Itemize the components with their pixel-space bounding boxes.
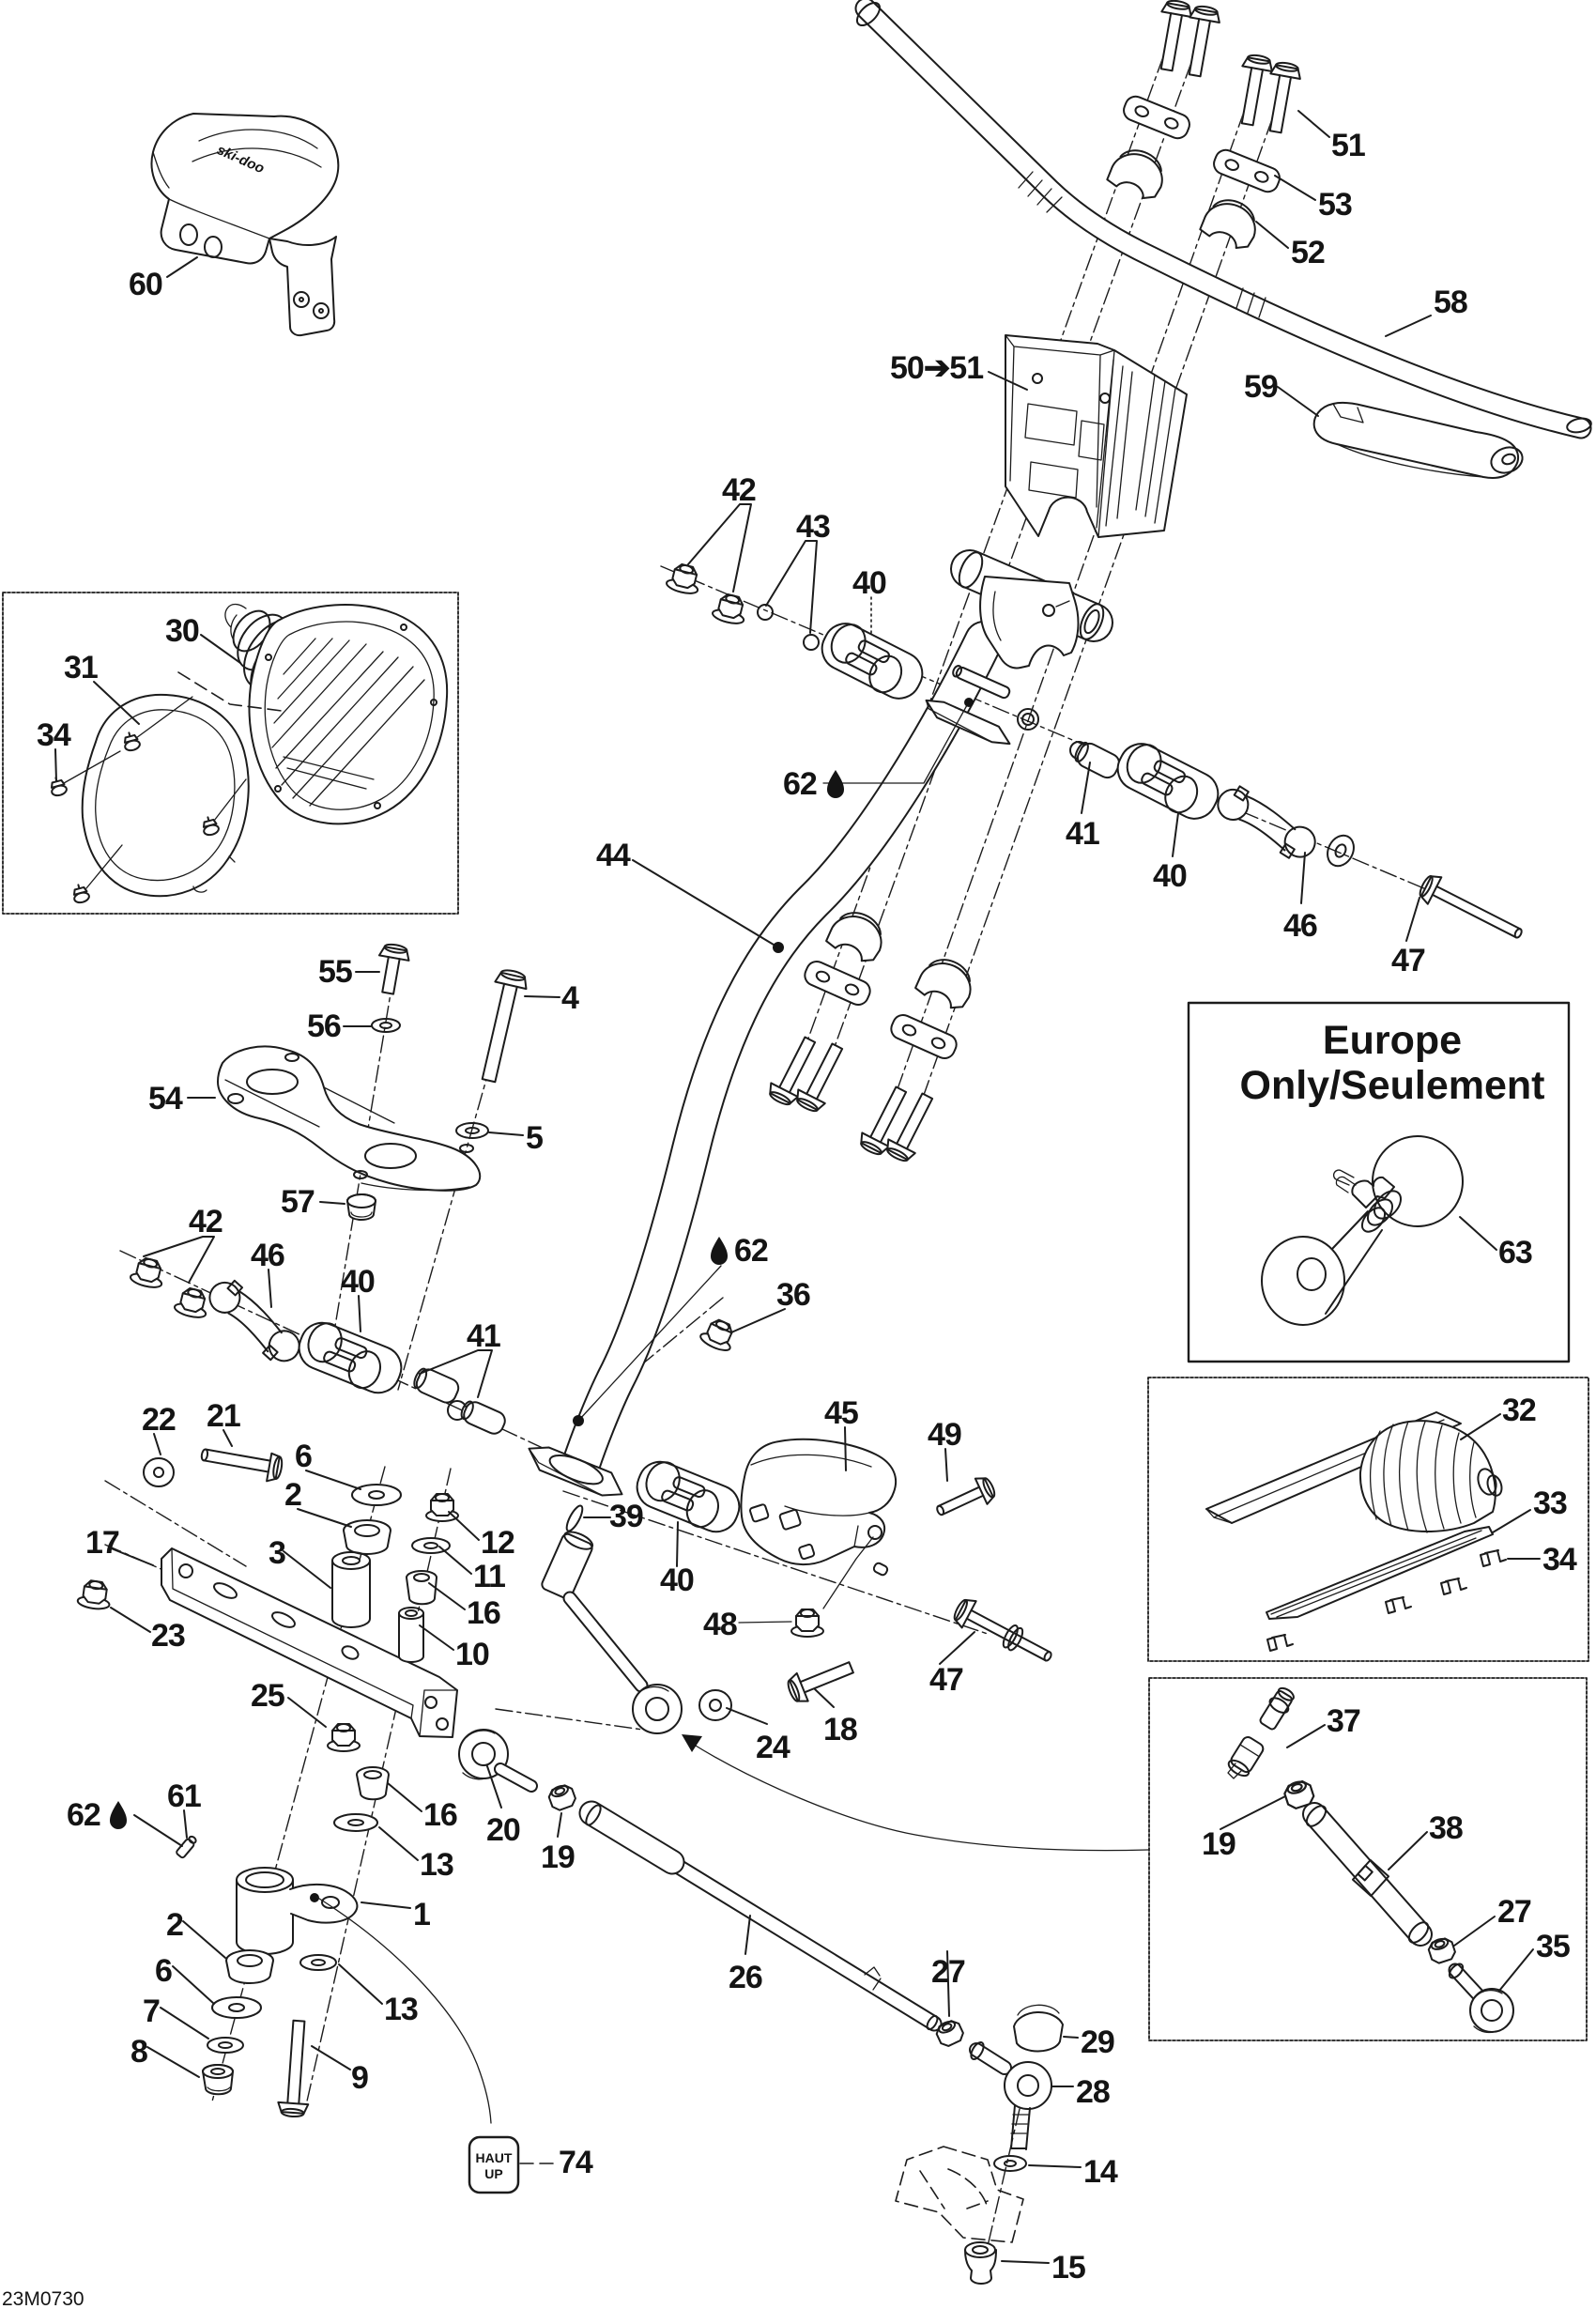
- svg-text:14: 14: [1083, 2154, 1118, 2190]
- svg-text:13: 13: [384, 1992, 418, 2027]
- svg-text:42: 42: [722, 472, 756, 508]
- svg-text:59: 59: [1244, 369, 1278, 405]
- svg-text:27: 27: [1497, 1894, 1531, 1930]
- svg-text:53: 53: [1318, 187, 1352, 223]
- svg-text:4: 4: [561, 980, 579, 1016]
- svg-text:55: 55: [318, 954, 352, 990]
- svg-text:74: 74: [559, 2145, 593, 2180]
- svg-text:37: 37: [1327, 1703, 1360, 1739]
- svg-text:23M0730: 23M0730: [2, 2288, 84, 2309]
- svg-text:24: 24: [756, 1730, 790, 1765]
- svg-text:31: 31: [64, 650, 98, 685]
- svg-text:40: 40: [1153, 858, 1187, 894]
- svg-text:13: 13: [420, 1847, 453, 1883]
- svg-text:46: 46: [1283, 908, 1317, 944]
- svg-text:40: 40: [660, 1562, 694, 1598]
- svg-text:42: 42: [189, 1204, 223, 1239]
- svg-text:23: 23: [151, 1618, 185, 1654]
- svg-text:3: 3: [269, 1535, 285, 1571]
- svg-text:36: 36: [776, 1277, 810, 1313]
- svg-text:Only/Seulement: Only/Seulement: [1240, 1063, 1545, 1108]
- svg-text:50➔51: 50➔51: [890, 350, 983, 386]
- svg-text:41: 41: [467, 1318, 500, 1354]
- svg-text:25: 25: [251, 1678, 284, 1714]
- svg-text:5: 5: [526, 1120, 543, 1156]
- svg-text:22: 22: [142, 1402, 176, 1438]
- svg-text:16: 16: [467, 1595, 500, 1631]
- svg-text:47: 47: [929, 1662, 963, 1698]
- svg-text:52: 52: [1291, 235, 1325, 270]
- svg-text:57: 57: [281, 1184, 315, 1220]
- svg-text:27: 27: [931, 1954, 965, 1990]
- svg-text:46: 46: [251, 1238, 284, 1273]
- svg-text:1: 1: [413, 1897, 430, 1932]
- svg-text:34: 34: [1542, 1542, 1577, 1578]
- svg-text:44: 44: [596, 838, 631, 873]
- svg-text:16: 16: [423, 1797, 457, 1833]
- svg-text:60: 60: [129, 267, 162, 302]
- svg-text:Europe: Europe: [1323, 1018, 1462, 1063]
- svg-text:20: 20: [486, 1812, 520, 1848]
- svg-text:8: 8: [130, 2034, 147, 2070]
- svg-text:HAUT: HAUT: [476, 2150, 513, 2165]
- svg-text:12: 12: [481, 1525, 514, 1561]
- svg-text:34: 34: [37, 717, 71, 753]
- svg-text:15: 15: [1051, 2250, 1085, 2286]
- svg-text:58: 58: [1434, 285, 1467, 320]
- svg-text:38: 38: [1429, 1810, 1463, 1846]
- svg-text:11: 11: [473, 1559, 505, 1594]
- svg-text:2: 2: [284, 1477, 301, 1513]
- svg-text:49: 49: [928, 1417, 961, 1453]
- svg-text:43: 43: [796, 509, 830, 545]
- svg-text:19: 19: [541, 1840, 575, 1875]
- svg-text:48: 48: [703, 1607, 737, 1642]
- svg-text:2: 2: [166, 1907, 183, 1943]
- svg-text:54: 54: [148, 1081, 183, 1116]
- svg-text:9: 9: [351, 2060, 368, 2096]
- svg-text:28: 28: [1076, 2074, 1110, 2110]
- svg-text:51: 51: [1331, 128, 1365, 163]
- svg-text:32: 32: [1502, 1393, 1536, 1428]
- svg-text:62: 62: [734, 1233, 768, 1269]
- svg-text:41: 41: [1066, 816, 1099, 852]
- svg-text:62: 62: [783, 766, 817, 802]
- svg-text:40: 40: [341, 1264, 375, 1300]
- svg-text:21: 21: [207, 1398, 240, 1434]
- svg-text:6: 6: [295, 1439, 312, 1474]
- svg-text:47: 47: [1391, 943, 1425, 978]
- svg-text:7: 7: [143, 1993, 160, 2029]
- svg-text:33: 33: [1533, 1485, 1567, 1521]
- svg-text:56: 56: [307, 1008, 341, 1044]
- svg-text:35: 35: [1536, 1929, 1570, 1964]
- svg-text:10: 10: [455, 1637, 489, 1672]
- svg-text:45: 45: [824, 1395, 858, 1431]
- svg-text:29: 29: [1081, 2024, 1114, 2060]
- svg-text:61: 61: [167, 1778, 201, 1814]
- svg-text:6: 6: [155, 1953, 172, 1989]
- svg-text:30: 30: [165, 613, 199, 649]
- svg-text:19: 19: [1202, 1826, 1235, 1862]
- svg-text:62: 62: [67, 1797, 100, 1833]
- svg-text:40: 40: [852, 565, 886, 601]
- svg-text:39: 39: [609, 1499, 643, 1534]
- svg-text:63: 63: [1498, 1235, 1532, 1270]
- svg-text:18: 18: [823, 1712, 857, 1747]
- svg-text:UP: UP: [484, 2166, 502, 2181]
- svg-text:17: 17: [85, 1525, 119, 1561]
- svg-text:26: 26: [729, 1960, 762, 1995]
